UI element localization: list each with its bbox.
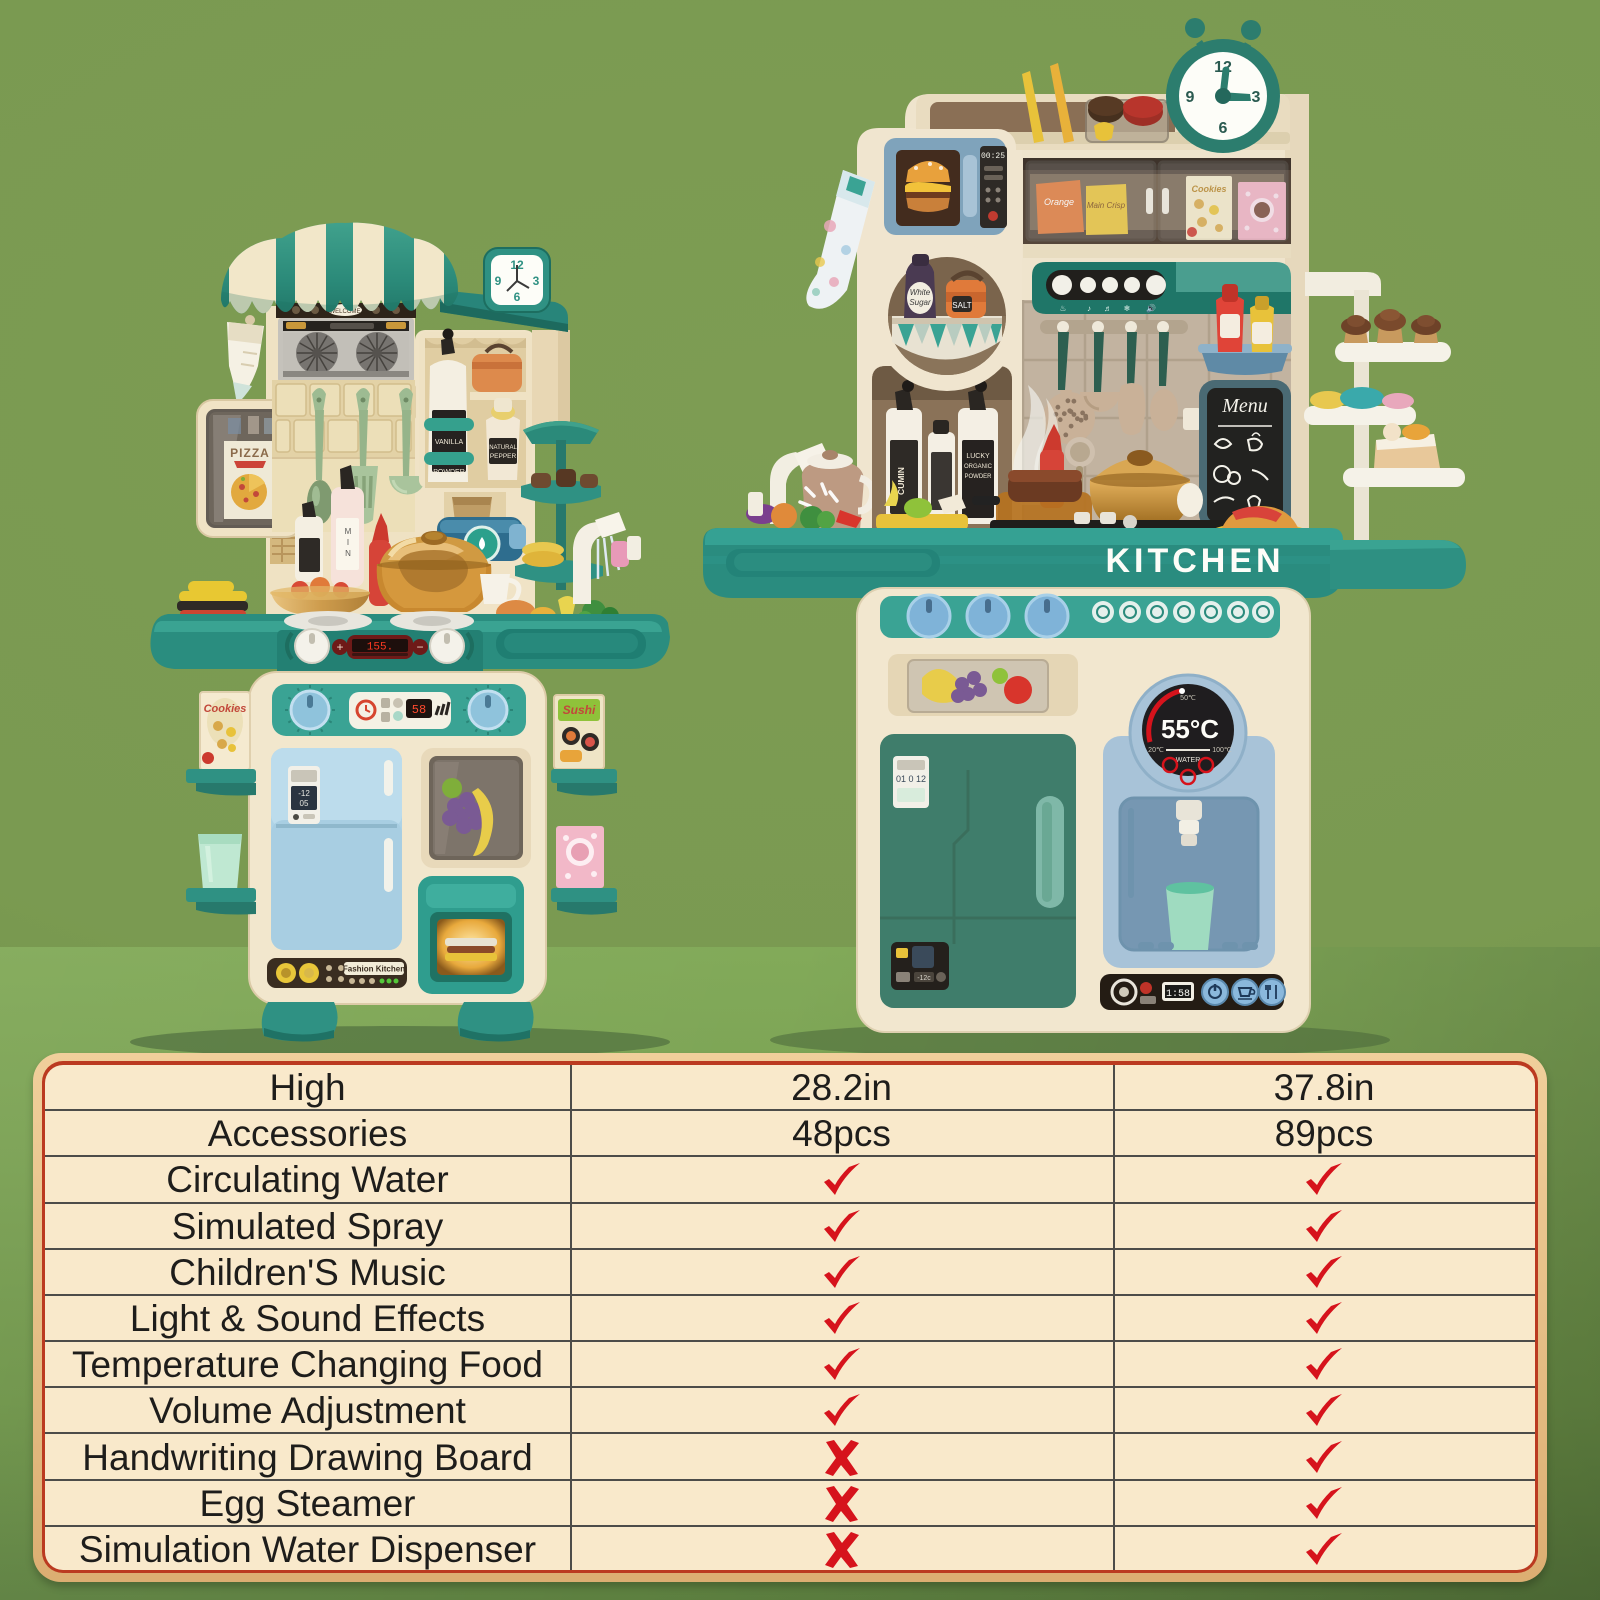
svg-text:3: 3 (533, 274, 540, 288)
svg-text:♪: ♪ (1087, 304, 1091, 313)
svg-text:Fashion Kitchen: Fashion Kitchen (343, 965, 405, 974)
svg-text:SALT: SALT (952, 301, 972, 310)
svg-text:♬: ♬ (1104, 304, 1112, 313)
svg-text:POWDER: POWDER (965, 474, 993, 480)
svg-text:POWDER: POWDER (433, 469, 465, 476)
svg-text:PEPPER: PEPPER (490, 453, 517, 460)
svg-text:9: 9 (1186, 89, 1195, 106)
svg-text:−: − (416, 640, 423, 654)
svg-text:🔊: 🔊 (1146, 303, 1156, 313)
svg-text:58: 58 (412, 703, 426, 717)
svg-text:Sugar: Sugar (909, 298, 931, 307)
svg-text:WELCOME: WELCOME (329, 309, 360, 315)
svg-text:100℃: 100℃ (1212, 747, 1232, 754)
svg-text:6: 6 (514, 290, 521, 304)
svg-text:NATURAL: NATURAL (489, 445, 517, 451)
svg-text:20℃: 20℃ (1148, 747, 1164, 754)
svg-text:Menu: Menu (1221, 395, 1268, 417)
svg-text:-12c: -12c (917, 975, 931, 982)
svg-text:+: + (336, 640, 343, 654)
svg-text:KITCHEN: KITCHEN (1105, 542, 1284, 580)
svg-text:WATER: WATER (1176, 757, 1201, 764)
svg-text:-12: -12 (298, 789, 310, 798)
svg-text:LUCKY: LUCKY (966, 453, 990, 460)
svg-text:50℃: 50℃ (1180, 695, 1196, 702)
svg-text:9: 9 (495, 274, 502, 288)
svg-text:1:58: 1:58 (1166, 989, 1190, 1000)
svg-text:VANILLA: VANILLA (435, 439, 464, 446)
svg-text:♨: ♨ (1059, 304, 1066, 313)
svg-text:6: 6 (1219, 120, 1228, 137)
svg-text:05: 05 (300, 799, 309, 808)
svg-text:Sushi: Sushi (563, 703, 596, 717)
svg-text:55°C: 55°C (1161, 714, 1219, 744)
svg-text:01 0 12: 01 0 12 (896, 774, 926, 784)
svg-text:N: N (345, 549, 351, 558)
svg-text:00:25: 00:25 (981, 152, 1005, 161)
svg-text:M: M (345, 527, 352, 536)
svg-text:Cookies: Cookies (204, 703, 247, 715)
svg-text:I: I (347, 538, 349, 547)
svg-text:ORGANIC: ORGANIC (964, 464, 993, 470)
svg-text:3: 3 (1252, 89, 1261, 106)
svg-text:PIZZA: PIZZA (230, 446, 270, 460)
svg-text:❄: ❄ (1124, 304, 1131, 313)
svg-text:White: White (910, 288, 931, 297)
svg-text:155.: 155. (367, 642, 393, 654)
